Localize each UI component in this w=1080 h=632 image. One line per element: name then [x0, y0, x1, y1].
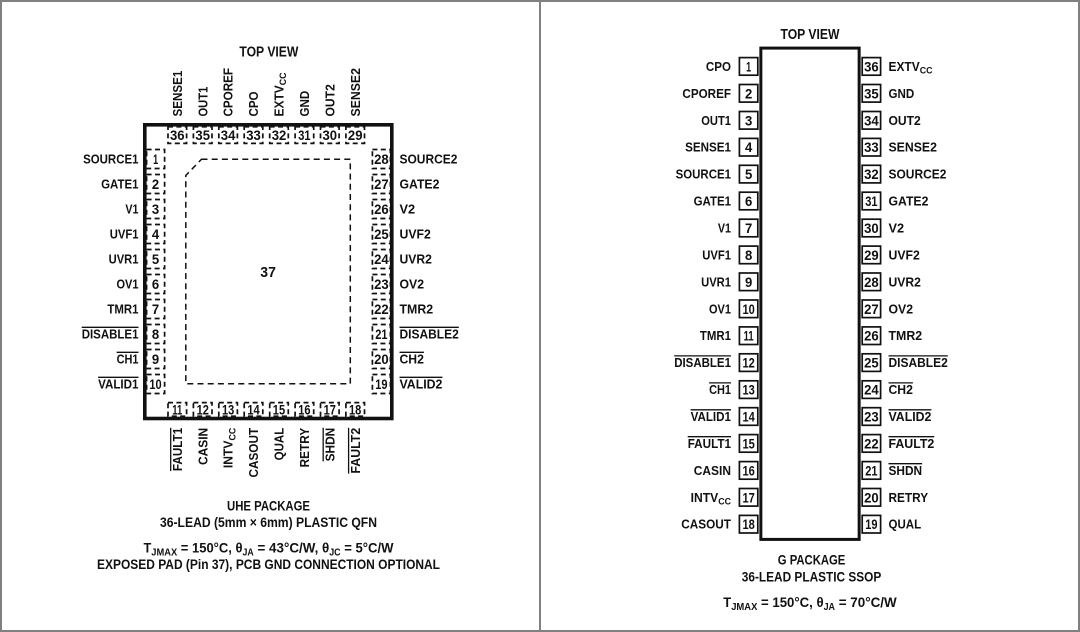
svg-text:TMR1: TMR1	[107, 303, 138, 317]
svg-text:31: 31	[865, 193, 877, 209]
svg-text:UVR2: UVR2	[889, 275, 921, 289]
svg-text:21: 21	[375, 326, 387, 342]
svg-text:13: 13	[743, 382, 755, 398]
svg-text:VALID1: VALID1	[98, 378, 138, 392]
svg-text:CC: CC	[278, 72, 289, 85]
svg-text:INTV: INTV	[222, 440, 236, 468]
svg-text:OV1: OV1	[117, 278, 139, 292]
svg-text:CC: CC	[920, 66, 933, 77]
svg-text:QUAL: QUAL	[273, 427, 287, 460]
svg-text:CH2: CH2	[400, 353, 424, 367]
svg-text:7: 7	[152, 301, 159, 317]
svg-text:8: 8	[152, 326, 159, 342]
svg-text:CPOREF: CPOREF	[682, 87, 731, 101]
svg-text:INTV: INTV	[691, 491, 719, 505]
svg-text:= 43°C/W, θ: = 43°C/W, θ	[254, 541, 329, 556]
svg-text:TMR2: TMR2	[889, 329, 923, 343]
svg-text:12: 12	[197, 402, 209, 418]
svg-text:OUT2: OUT2	[889, 114, 921, 128]
svg-text:RETRY: RETRY	[298, 427, 312, 467]
svg-text:GATE1: GATE1	[101, 178, 138, 192]
svg-text:GATE2: GATE2	[400, 178, 440, 192]
svg-text:9: 9	[745, 274, 752, 290]
svg-text:SOURCE1: SOURCE1	[83, 153, 138, 167]
svg-text:CH2: CH2	[889, 383, 913, 397]
svg-text:UHE PACKAGE: UHE PACKAGE	[227, 499, 310, 514]
svg-text:19: 19	[375, 376, 387, 392]
svg-text:18: 18	[349, 402, 361, 418]
svg-text:14: 14	[743, 409, 755, 425]
svg-text:6: 6	[745, 193, 752, 209]
svg-text:V1: V1	[718, 222, 731, 236]
svg-text:17: 17	[324, 402, 336, 418]
svg-text:= 5°C/W: = 5°C/W	[341, 541, 394, 556]
svg-text:8: 8	[745, 247, 752, 263]
svg-text:2: 2	[745, 85, 752, 101]
svg-text:SENSE1: SENSE1	[685, 141, 731, 155]
svg-text:V1: V1	[125, 203, 138, 217]
svg-text:CASOUT: CASOUT	[247, 428, 261, 478]
svg-text:14: 14	[247, 402, 259, 418]
svg-text:GND: GND	[298, 91, 312, 117]
svg-text:23: 23	[864, 409, 879, 425]
svg-text:34: 34	[864, 112, 879, 128]
svg-text:QUAL: QUAL	[889, 518, 922, 532]
svg-text:VALID2: VALID2	[889, 410, 932, 424]
svg-text:29: 29	[348, 127, 363, 143]
svg-text:15: 15	[743, 435, 755, 451]
svg-text:SENSE2: SENSE2	[889, 141, 937, 155]
svg-text:11: 11	[744, 328, 754, 344]
svg-text:DISABLE1: DISABLE1	[82, 328, 139, 342]
svg-text:1: 1	[153, 151, 158, 167]
svg-text:CC: CC	[227, 428, 238, 441]
svg-text:SHDN: SHDN	[889, 464, 923, 478]
svg-text:9: 9	[152, 351, 159, 367]
svg-text:28: 28	[864, 274, 879, 290]
svg-text:DISABLE1: DISABLE1	[674, 356, 731, 370]
svg-text:21: 21	[865, 462, 877, 478]
svg-text:SOURCE2: SOURCE2	[400, 153, 458, 167]
svg-text:5: 5	[745, 166, 752, 182]
svg-text:CPO: CPO	[247, 91, 261, 116]
svg-text:CPO: CPO	[706, 60, 731, 74]
svg-text:EXTV: EXTV	[889, 60, 921, 74]
svg-text:V2: V2	[889, 222, 905, 236]
svg-text:3: 3	[152, 201, 159, 217]
svg-text:= 70°C/W: = 70°C/W	[835, 595, 897, 610]
svg-text:CH1: CH1	[709, 383, 731, 397]
svg-text:10: 10	[149, 376, 161, 392]
svg-text:19: 19	[865, 516, 877, 532]
svg-text:CASOUT: CASOUT	[681, 518, 731, 532]
svg-text:37: 37	[260, 264, 276, 281]
svg-text:EXTV: EXTV	[273, 85, 287, 117]
svg-text:25: 25	[864, 355, 879, 371]
svg-text:35: 35	[195, 127, 210, 143]
svg-text:35: 35	[864, 85, 879, 101]
svg-text:34: 34	[221, 127, 236, 143]
svg-text:OV1: OV1	[709, 302, 731, 316]
svg-text:UVR1: UVR1	[109, 253, 139, 267]
svg-text:FAULT1: FAULT1	[688, 437, 731, 451]
svg-text:36: 36	[864, 58, 879, 74]
svg-text:13: 13	[222, 402, 234, 418]
svg-text:G PACKAGE: G PACKAGE	[778, 552, 846, 567]
svg-text:SENSE2: SENSE2	[349, 68, 363, 116]
svg-text:CPOREF: CPOREF	[222, 68, 236, 117]
svg-text:GND: GND	[889, 87, 915, 101]
svg-text:V2: V2	[400, 203, 416, 217]
svg-text:27: 27	[374, 176, 389, 192]
svg-text:DISABLE2: DISABLE2	[400, 328, 459, 342]
svg-text:DISABLE2: DISABLE2	[889, 356, 948, 370]
svg-text:3: 3	[745, 112, 752, 128]
svg-text:UVR2: UVR2	[400, 253, 432, 267]
svg-text:22: 22	[374, 301, 389, 317]
svg-text:28: 28	[374, 151, 389, 167]
svg-text:GATE2: GATE2	[889, 195, 929, 209]
svg-text:5: 5	[152, 251, 159, 267]
svg-text:OV2: OV2	[400, 278, 425, 292]
svg-text:30: 30	[323, 127, 338, 143]
svg-text:CC: CC	[718, 496, 731, 507]
svg-text:VALID1: VALID1	[691, 410, 731, 424]
svg-text:4: 4	[152, 226, 159, 242]
svg-text:2: 2	[152, 176, 159, 192]
svg-text:16: 16	[298, 402, 310, 418]
svg-text:OV2: OV2	[889, 302, 914, 316]
svg-text:CASIN: CASIN	[196, 428, 210, 465]
svg-text:UVF2: UVF2	[400, 228, 431, 242]
svg-text:JA: JA	[824, 602, 836, 613]
svg-text:CH1: CH1	[117, 353, 139, 367]
svg-text:EXPOSED PAD (Pin 37), PCB GND: EXPOSED PAD (Pin 37), PCB GND CONNECTION…	[97, 557, 440, 572]
svg-text:26: 26	[864, 328, 879, 344]
svg-text:SOURCE2: SOURCE2	[889, 168, 947, 182]
svg-text:27: 27	[864, 301, 879, 317]
svg-text:FAULT2: FAULT2	[889, 437, 935, 451]
svg-text:= 150°C, θ: = 150°C, θ	[177, 541, 242, 556]
svg-text:SHDN: SHDN	[323, 428, 337, 462]
svg-text:TOP VIEW: TOP VIEW	[781, 26, 841, 43]
svg-text:11: 11	[172, 402, 182, 418]
svg-text:24: 24	[864, 382, 879, 398]
svg-text:16: 16	[743, 462, 755, 478]
svg-text:4: 4	[745, 139, 752, 155]
svg-text:36-LEAD (5mm × 6mm) PLASTIC QF: 36-LEAD (5mm × 6mm) PLASTIC QFN	[160, 515, 377, 530]
svg-text:OUT1: OUT1	[701, 114, 731, 128]
svg-text:30: 30	[864, 220, 879, 236]
svg-text:22: 22	[864, 435, 879, 451]
svg-text:VALID2: VALID2	[400, 378, 443, 392]
svg-text:RETRY: RETRY	[889, 491, 929, 505]
svg-text:1: 1	[746, 58, 751, 74]
svg-text:15: 15	[273, 402, 285, 418]
svg-text:36: 36	[170, 127, 185, 143]
svg-text:OUT1: OUT1	[196, 87, 210, 117]
svg-text:TMR2: TMR2	[400, 303, 434, 317]
svg-text:7: 7	[745, 220, 752, 236]
svg-text:33: 33	[246, 127, 261, 143]
svg-text:20: 20	[374, 351, 389, 367]
svg-text:CASIN: CASIN	[694, 464, 731, 478]
svg-text:12: 12	[743, 355, 755, 371]
svg-text:24: 24	[374, 251, 389, 267]
svg-text:TMR1: TMR1	[700, 329, 731, 343]
svg-text:UVR1: UVR1	[701, 275, 731, 289]
svg-text:FAULT1: FAULT1	[171, 428, 185, 471]
svg-text:25: 25	[374, 226, 389, 242]
svg-text:TOP VIEW: TOP VIEW	[239, 44, 299, 61]
svg-text:UVF1: UVF1	[702, 248, 731, 262]
svg-text:20: 20	[864, 489, 879, 505]
svg-text:31: 31	[298, 127, 310, 143]
svg-text:32: 32	[864, 166, 879, 182]
svg-text:23: 23	[374, 276, 389, 292]
svg-text:FAULT2: FAULT2	[349, 428, 363, 474]
svg-text:6: 6	[152, 276, 159, 292]
svg-text:36-LEAD PLASTIC SSOP: 36-LEAD PLASTIC SSOP	[742, 570, 882, 585]
svg-text:SOURCE1: SOURCE1	[676, 168, 731, 182]
svg-text:OUT2: OUT2	[323, 84, 337, 116]
svg-text:UVF2: UVF2	[889, 248, 920, 262]
svg-text:SENSE1: SENSE1	[171, 71, 185, 117]
svg-text:33: 33	[864, 139, 879, 155]
svg-text:32: 32	[272, 127, 287, 143]
svg-text:JMAX: JMAX	[731, 602, 757, 613]
svg-text:= 150°C, θ: = 150°C, θ	[757, 595, 823, 610]
svg-text:10: 10	[743, 301, 755, 317]
svg-text:29: 29	[864, 247, 879, 263]
svg-text:26: 26	[374, 201, 389, 217]
svg-text:17: 17	[743, 489, 755, 505]
svg-text:GATE1: GATE1	[694, 195, 731, 209]
svg-text:18: 18	[743, 516, 755, 532]
svg-text:UVF1: UVF1	[110, 228, 139, 242]
